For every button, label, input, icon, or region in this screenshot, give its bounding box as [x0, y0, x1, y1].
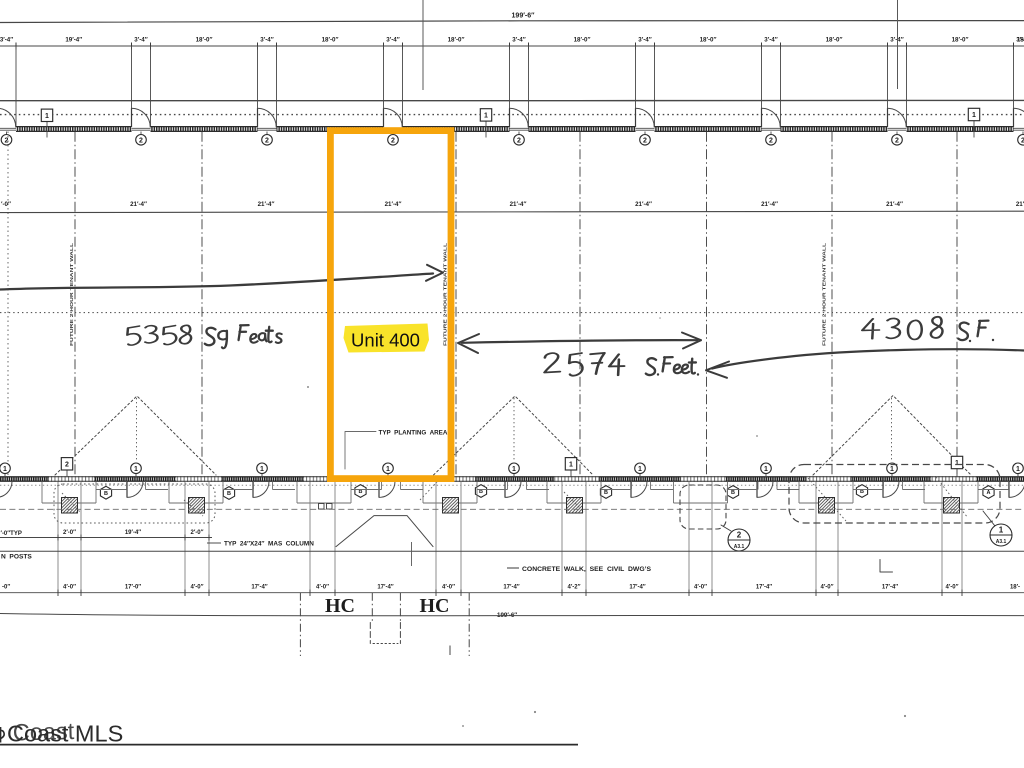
svg-text:A: A: [987, 490, 991, 496]
svg-text:A3.1: A3.1: [996, 539, 1007, 545]
svg-text:2: 2: [769, 137, 773, 144]
svg-text:2: 2: [139, 137, 143, 144]
svg-text:18′-0″: 18′-0″: [574, 37, 591, 44]
svg-text:1: 1: [484, 113, 488, 120]
svg-text:19′-4″: 19′-4″: [125, 530, 141, 536]
svg-text:1: 1: [569, 461, 573, 468]
svg-text:4′-0″: 4′-0″: [442, 584, 455, 590]
svg-text:FUTURE 2 HOUR TENANT WALL: FUTURE 2 HOUR TENANT WALL: [69, 243, 74, 346]
svg-text:1: 1: [1016, 466, 1020, 473]
svg-text:B: B: [731, 490, 735, 496]
svg-text:18′-0″: 18′-0″: [196, 37, 213, 44]
svg-text:3′-4″: 3′-4″: [764, 37, 777, 44]
svg-text:FUTURE 2 HOUR TENANT WALL: FUTURE 2 HOUR TENANT WALL: [822, 243, 827, 346]
svg-text:1: 1: [3, 466, 7, 473]
svg-text:1: 1: [999, 526, 1004, 535]
svg-text:17′-4″: 17′-4″: [251, 584, 267, 590]
svg-text:4′-0″: 4′-0″: [694, 584, 707, 590]
svg-text:4′-0″: 4′-0″: [821, 584, 834, 590]
svg-text:1: 1: [890, 466, 894, 473]
svg-text:17′-4″: 17′-4″: [882, 584, 898, 590]
svg-text:3′-4″: 3′-4″: [260, 37, 273, 44]
svg-text:19′-4″: 19′-4″: [65, 37, 82, 44]
svg-text:2: 2: [895, 137, 899, 144]
svg-text:2: 2: [737, 531, 742, 540]
svg-text:2: 2: [65, 461, 69, 468]
svg-text:21′-4″: 21′-4″: [761, 201, 778, 208]
svg-text:17′-4″: 17′-4″: [503, 584, 519, 590]
svg-text:1: 1: [260, 466, 264, 473]
svg-text:1: 1: [134, 466, 138, 473]
svg-text:17′-4″: 17′-4″: [377, 584, 393, 590]
svg-text:2′-0″: 2′-0″: [63, 530, 76, 536]
svg-text:N POSTS: N POSTS: [1, 554, 32, 561]
svg-text:Coast: Coast: [12, 718, 75, 746]
svg-text:-0″: -0″: [2, 584, 10, 590]
svg-text:B: B: [604, 490, 608, 496]
svg-text:21′-4″: 21′-4″: [886, 201, 903, 208]
svg-text:4′-2″: 4′-2″: [568, 584, 581, 590]
svg-text:18′-0″: 18′-0″: [322, 37, 339, 44]
svg-text:B: B: [227, 491, 231, 497]
svg-text:17′-4″: 17′-4″: [756, 584, 772, 590]
svg-text:2: 2: [391, 137, 395, 144]
svg-text:2: 2: [517, 137, 521, 144]
svg-text:21′-4″: 21′-4″: [385, 201, 402, 208]
svg-text:4′-0″: 4′-0″: [191, 584, 204, 590]
svg-text:CONCRETE WALK, SEE CIVIL D: CONCRETE WALK, SEE CIVIL DWG’S: [522, 566, 651, 573]
svg-text:B: B: [860, 489, 864, 495]
svg-text:1: 1: [764, 466, 768, 473]
svg-text:4′-0″: 4′-0″: [946, 584, 959, 590]
svg-text:′-0″TYP: ′-0″TYP: [1, 531, 22, 537]
svg-text:A3.1: A3.1: [734, 544, 745, 550]
svg-text:21′: 21′: [1016, 201, 1024, 208]
svg-text:21′-4″: 21′-4″: [635, 201, 652, 208]
svg-text:B: B: [479, 489, 483, 495]
svg-text:21′-4″: 21′-4″: [510, 201, 527, 208]
svg-text:3′-4″: 3′-4″: [386, 37, 399, 44]
svg-text:B: B: [359, 489, 363, 495]
svg-text:1: 1: [512, 466, 516, 473]
svg-text:Unit 400: Unit 400: [351, 330, 420, 351]
svg-text:18′-0″: 18′-0″: [700, 37, 717, 44]
svg-text:3′-4″: 3′-4″: [134, 37, 147, 44]
svg-text:1: 1: [955, 460, 959, 467]
svg-text:HC: HC: [420, 595, 450, 617]
svg-text:FUTURE 2 HOUR TENANT WALL: FUTURE 2 HOUR TENANT WALL: [443, 243, 448, 346]
svg-text:4′-0″: 4′-0″: [316, 584, 329, 590]
svg-text:21′-4″: 21′-4″: [258, 201, 275, 208]
svg-text:17′-0″: 17′-0″: [125, 584, 141, 590]
svg-text:4′-0″: 4′-0″: [63, 584, 76, 590]
svg-text:18′-: 18′-: [1010, 584, 1020, 590]
svg-text:3′-4″: 3′-4″: [0, 37, 13, 44]
svg-text:TYP PLANTING AREA: TYP PLANTING AREA: [379, 430, 448, 437]
svg-text:1: 1: [972, 112, 976, 119]
svg-text:18′-0″: 18′-0″: [952, 37, 969, 44]
svg-text:21′-4″: 21′-4″: [130, 201, 147, 208]
svg-text:TYP 24″X24″ MAS COLUMN: TYP 24″X24″ MAS COLUMN: [224, 541, 314, 548]
svg-text:′-0″: ′-0″: [1, 201, 11, 208]
svg-text:3′-4″: 3′-4″: [512, 37, 525, 44]
svg-text:18′: 18′: [1017, 37, 1024, 44]
svg-text:HC: HC: [325, 595, 355, 617]
svg-text:1: 1: [386, 466, 390, 473]
svg-text:1: 1: [638, 466, 642, 473]
svg-text:2′-0″: 2′-0″: [191, 530, 204, 536]
svg-text:1: 1: [45, 113, 49, 120]
svg-text:199′-6″: 199′-6″: [512, 13, 536, 20]
svg-text:17′-4″: 17′-4″: [629, 584, 645, 590]
svg-text:B: B: [104, 491, 108, 497]
svg-text:2: 2: [643, 137, 647, 144]
svg-text:18′-0″: 18′-0″: [448, 37, 465, 44]
svg-text:3′-4″: 3′-4″: [638, 37, 651, 44]
svg-text:18′-0″: 18′-0″: [826, 37, 843, 44]
svg-text:2: 2: [265, 137, 269, 144]
